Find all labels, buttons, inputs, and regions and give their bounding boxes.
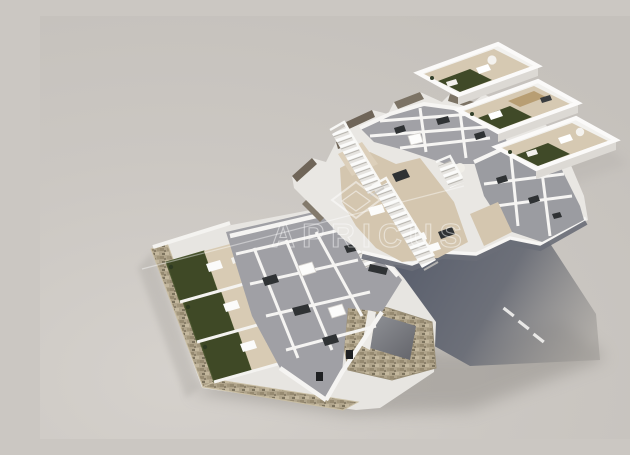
render-canvas: APRICUS bbox=[40, 16, 630, 439]
window-opening bbox=[316, 372, 323, 381]
watermark-text: APRICUS bbox=[271, 217, 469, 254]
window-opening bbox=[346, 350, 353, 359]
property-3d-floorplan-render: APRICUS bbox=[40, 16, 630, 439]
